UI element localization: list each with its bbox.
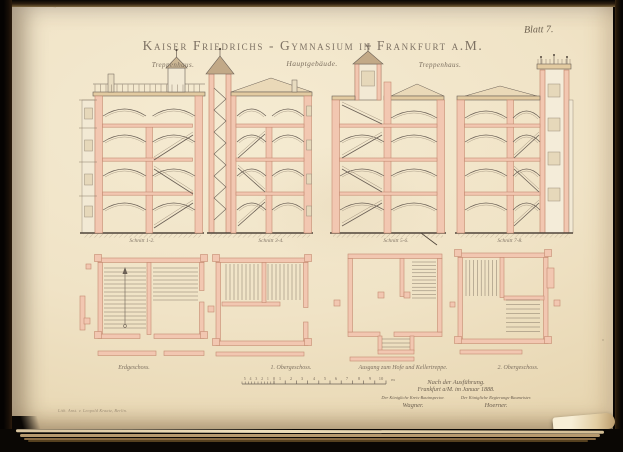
colophon-right-signature: Hoerner. [460, 402, 532, 409]
colophon-line1: Nach der Ausführung. [380, 379, 532, 386]
colophon-left-signature: Wagner. [380, 402, 446, 409]
scale-number: 5 [320, 376, 330, 381]
scale-number: 9 [365, 376, 375, 381]
plan-label-1: Erdgeschoss. [99, 365, 169, 371]
scale-number: 4 [309, 376, 319, 381]
group-label-stairhouse-left: Treppenhaus. [138, 61, 208, 69]
section-drawing-3 [330, 43, 446, 245]
section-drawing-4 [455, 54, 573, 238]
plan-drawing-1 [80, 255, 208, 356]
plan-drawing-4 [450, 250, 560, 355]
plan-label-3: Ausgang zum Hofe und Kellertreppe. [330, 365, 476, 371]
colophon-line2: Frankfurt a/M. im Januar 1888. [380, 387, 532, 393]
page-edge [28, 440, 588, 442]
scale-bar-graphic [242, 381, 386, 385]
section-drawing-1 [79, 49, 205, 238]
plan-drawing-2 [208, 255, 312, 357]
colophon-right-title: Der Königliche Regierungs-Baumeister. [460, 395, 532, 401]
group-label-stairhouse-right: Treppenhaus. [405, 61, 475, 69]
photo-edge-top [0, 0, 623, 7]
book-binding-edge [0, 0, 12, 452]
plan-drawing-3 [334, 254, 442, 361]
section-label-2: Schnitt 3-4. [236, 238, 306, 244]
section-label-1: Schnitt 1-2. [107, 238, 177, 244]
colophon-left-title: Der Königliche Kreis-Bauinspector. [380, 395, 446, 401]
photographed-plate: Kaiser Friedrichs - Gymnasium in Frankfu… [0, 0, 623, 452]
page-edge [20, 434, 600, 437]
scale-number: 2 [286, 376, 296, 381]
page-stack [0, 429, 623, 452]
scale-number: 8 [354, 376, 364, 381]
lithographer-imprint: Lith. Anst. v. Leopold Kraatz, Berlin. [58, 408, 158, 413]
sheet-number: Blatt 7. [524, 23, 584, 36]
scale-number: 7 [342, 376, 352, 381]
section-drawing-2 [206, 48, 313, 238]
scale-number: 6 [331, 376, 341, 381]
photo-edge-right [615, 0, 623, 452]
scale-number: 3 [297, 376, 307, 381]
scale-number: 1 [275, 376, 285, 381]
section-label-4: Schnitt 7-8. [475, 238, 545, 244]
plate-title: Kaiser Friedrichs - Gymnasium in Frankfu… [133, 38, 493, 54]
plan-label-2: 1. Obergeschoss. [256, 365, 326, 371]
group-label-main-building: Hauptgebäude. [277, 59, 347, 68]
plan-label-4: 2. Obergeschoss. [483, 365, 553, 371]
colophon-block: Nach der Ausführung. Frankfurt a/M. im J… [380, 379, 532, 409]
section-label-3: Schnitt 5-6. [361, 238, 431, 244]
